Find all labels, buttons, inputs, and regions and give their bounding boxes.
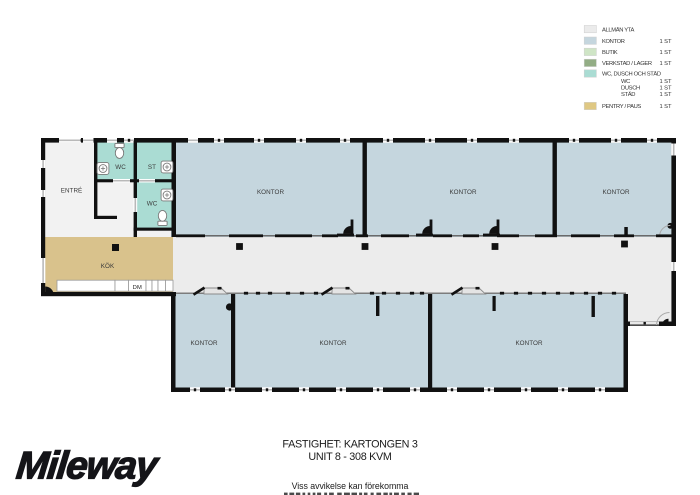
svg-text:WC, DUSCH OCH STÄD: WC, DUSCH OCH STÄD xyxy=(602,71,661,78)
svg-text:WC: WC xyxy=(115,164,126,171)
svg-text:KONTOR: KONTOR xyxy=(257,189,285,196)
svg-text:UNIT 8 - 308 KVM: UNIT 8 - 308 KVM xyxy=(308,451,392,463)
svg-text:KÖK: KÖK xyxy=(101,262,115,270)
svg-text:VERKSTAD / LAGER: VERKSTAD / LAGER xyxy=(602,61,652,67)
svg-text:DUSCH: DUSCH xyxy=(621,86,640,92)
svg-text:ENTRÉ: ENTRÉ xyxy=(61,185,83,194)
svg-text:1 ST: 1 ST xyxy=(660,61,672,67)
svg-text:KONTOR: KONTOR xyxy=(190,340,218,347)
svg-text:KONTOR: KONTOR xyxy=(515,340,543,347)
svg-text:KONTOR: KONTOR xyxy=(449,189,477,196)
svg-text:KONTOR: KONTOR xyxy=(319,340,347,347)
svg-text:STÄD: STÄD xyxy=(621,91,635,98)
svg-text:WC: WC xyxy=(147,201,158,208)
svg-text:DM: DM xyxy=(133,285,142,291)
svg-text:FASTIGHET: KARTONGEN 3: FASTIGHET: KARTONGEN 3 xyxy=(282,439,417,451)
svg-text:1 ST: 1 ST xyxy=(660,104,672,110)
svg-text:1 ST: 1 ST xyxy=(660,86,672,92)
svg-text:1 ST: 1 ST xyxy=(660,50,672,56)
svg-text:ALLMÄN YTA: ALLMÄN YTA xyxy=(602,26,635,33)
svg-text:KONTOR: KONTOR xyxy=(602,39,625,45)
svg-text:ST: ST xyxy=(148,164,156,171)
svg-text:1 ST: 1 ST xyxy=(660,79,672,85)
svg-text:BUTIK: BUTIK xyxy=(602,50,618,56)
svg-text:PENTRY / PAUS: PENTRY / PAUS xyxy=(602,104,641,110)
svg-text:Viss avvikelse kan förekomma: Viss avvikelse kan förekomma xyxy=(292,481,409,491)
svg-text:WC: WC xyxy=(621,79,630,85)
svg-text:KONTOR: KONTOR xyxy=(602,189,630,196)
svg-text:1 ST: 1 ST xyxy=(660,92,672,98)
svg-text:Mileway: Mileway xyxy=(14,445,162,488)
svg-text:1 ST: 1 ST xyxy=(660,39,672,45)
